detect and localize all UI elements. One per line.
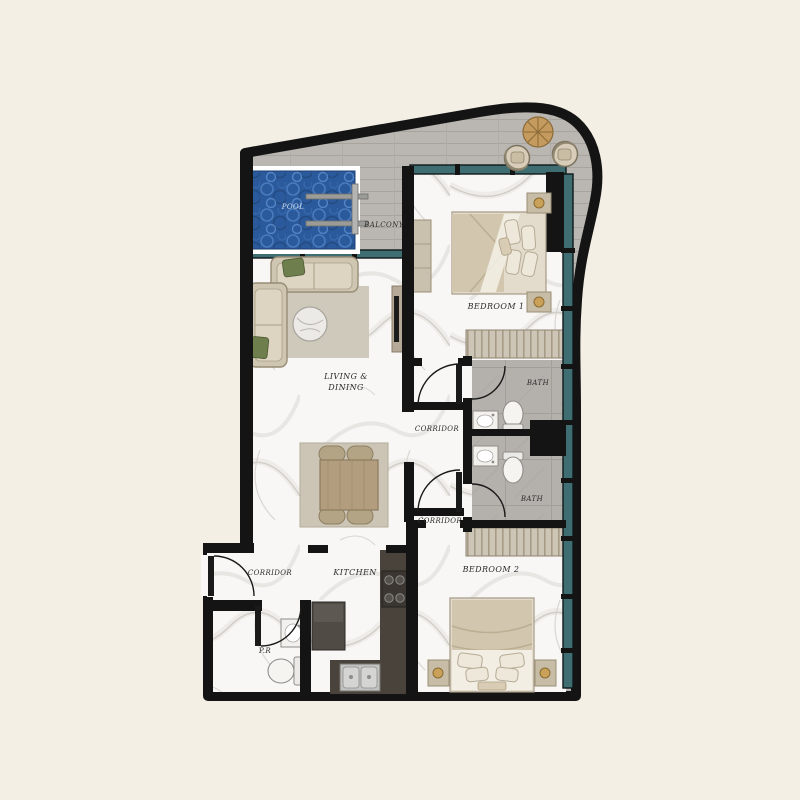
balcony-label: BALCONY bbox=[363, 221, 404, 229]
dining-set bbox=[300, 443, 388, 527]
powder-room-label: P.R bbox=[258, 647, 271, 655]
living-dining-label-1: LIVING & bbox=[323, 372, 368, 381]
bedroom1-window bbox=[410, 165, 566, 174]
bath1-label: BATH bbox=[526, 379, 550, 387]
kitchen-label: KITCHEN bbox=[332, 568, 377, 577]
bedroom1-dresser bbox=[413, 220, 431, 292]
bedroom2-wardrobe bbox=[466, 528, 564, 556]
bedroom1-wardrobe bbox=[466, 330, 566, 358]
balcony-chair-2 bbox=[553, 142, 578, 167]
pool bbox=[246, 166, 368, 254]
pr-toilet bbox=[268, 657, 302, 685]
bath2-label: BATH bbox=[520, 495, 544, 503]
floor-plan: POOL BALCONY BEDROOM 1 BATH BATH LIVING … bbox=[0, 0, 800, 800]
bedroom2-nightstand bbox=[428, 660, 449, 686]
dining-table bbox=[320, 460, 378, 510]
bedroom2-bed bbox=[450, 598, 534, 692]
kitchen-sink bbox=[340, 664, 380, 691]
bedroom1-label: BEDROOM 1 bbox=[467, 302, 525, 311]
bedroom2-nightstand-2 bbox=[535, 660, 556, 686]
pool-label: POOL bbox=[281, 203, 304, 211]
corridor-mid-label: CORRIDOR bbox=[415, 425, 460, 433]
corridor-low-label: CORRIDOR bbox=[418, 517, 463, 525]
living-dining-label-2: DINING bbox=[327, 383, 364, 392]
coffee-table bbox=[293, 307, 327, 341]
floor-plan-canvas: POOL BALCONY BEDROOM 1 BATH BATH LIVING … bbox=[0, 0, 800, 800]
corridor-entry-label: CORRIDOR bbox=[248, 569, 293, 577]
bedroom1-nightstand-2 bbox=[527, 292, 551, 312]
balcony-chair bbox=[505, 146, 530, 171]
sofa-pillow-green-1 bbox=[282, 258, 305, 278]
bath2-toilet bbox=[503, 452, 523, 483]
fridge bbox=[312, 602, 345, 650]
bedroom2-label: BEDROOM 2 bbox=[462, 565, 520, 574]
bedroom1-nightstand bbox=[527, 193, 551, 213]
bedroom1-bed bbox=[452, 212, 546, 294]
bath1-toilet bbox=[503, 401, 523, 432]
stove bbox=[382, 571, 407, 607]
